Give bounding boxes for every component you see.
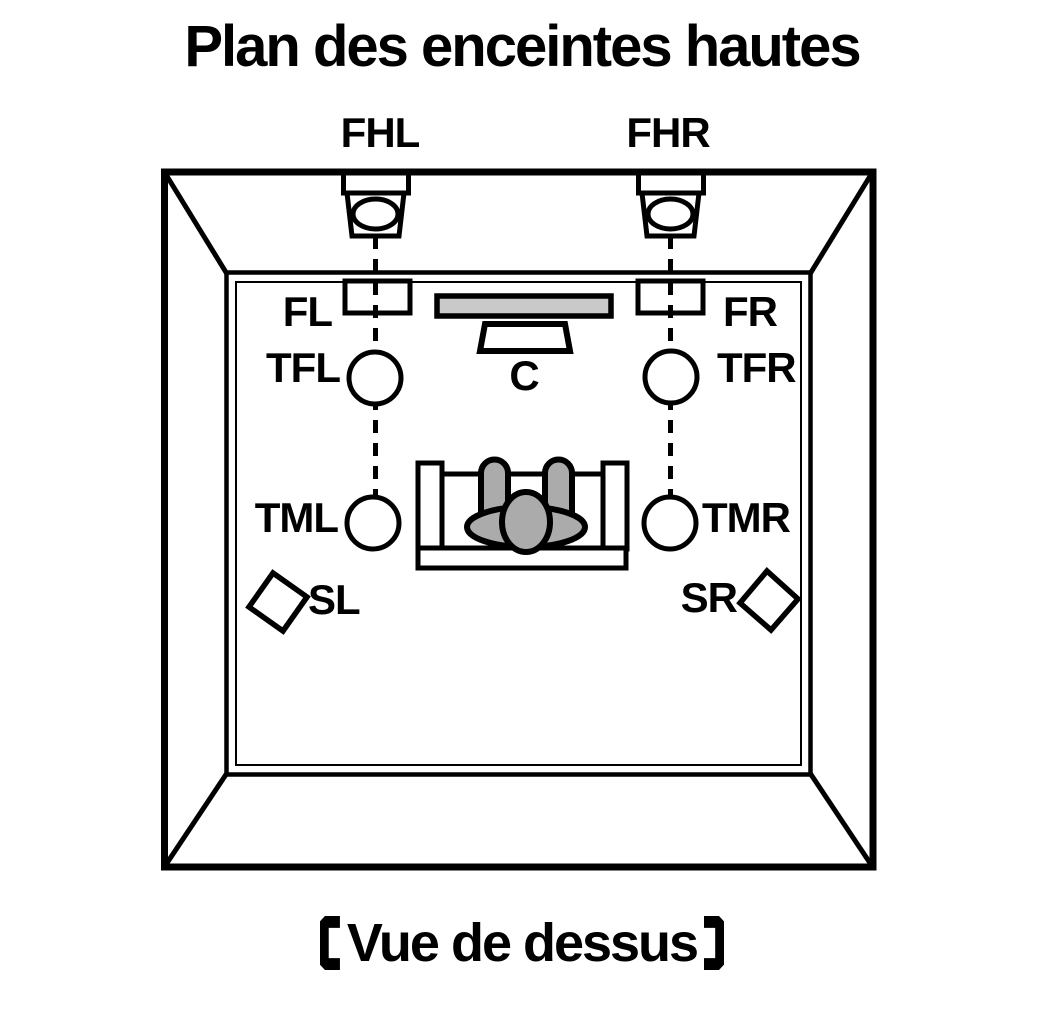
label-tmr: TMR — [702, 497, 790, 539]
label-c: C — [509, 355, 538, 397]
fhl-mount — [344, 173, 409, 193]
fhr-driver — [648, 199, 693, 229]
view-caption-text: Vue de dessus — [347, 916, 697, 970]
speaker-sr-icon — [740, 571, 798, 630]
label-tfr: TFR — [717, 347, 796, 389]
speaker-sl-icon — [249, 573, 307, 631]
room-corner-bottom-left — [165, 773, 227, 866]
sofa-armrest-left — [418, 463, 442, 549]
speaker-tfl-icon — [349, 352, 401, 404]
label-fr: FR — [723, 291, 777, 333]
speaker-fhl-icon — [344, 173, 409, 236]
tv-screen — [437, 296, 611, 316]
fhl-driver — [353, 199, 398, 229]
label-sl: SL — [308, 579, 360, 621]
room-corner-bottom-right — [810, 773, 872, 866]
listener-head — [502, 492, 550, 552]
room-corner-top-left — [165, 173, 227, 274]
label-fhr: FHR — [626, 112, 709, 154]
fhr-mount — [639, 173, 704, 193]
speaker-layout-figure: Plan des enceintes hautes — [0, 0, 1044, 1010]
label-tml: TML — [255, 497, 338, 539]
label-fhl: FHL — [341, 112, 420, 154]
label-fl: FL — [283, 291, 332, 333]
speaker-fhr-icon — [639, 173, 704, 236]
tv-icon — [437, 296, 611, 351]
label-sr: SR — [681, 577, 737, 619]
view-caption: Vue de dessus — [0, 916, 1044, 970]
top-view-room-diagram — [0, 0, 1044, 1010]
right-lenticular-bracket-icon — [704, 916, 724, 970]
label-tfl: TFL — [266, 347, 340, 389]
tv-stand — [480, 324, 570, 351]
left-lenticular-bracket-icon — [320, 916, 340, 970]
speaker-tmr-icon — [644, 497, 696, 549]
sofa-armrest-right — [603, 463, 627, 549]
speaker-tml-icon — [347, 497, 399, 549]
speaker-tfr-icon — [645, 351, 697, 403]
room-corner-top-right — [810, 173, 872, 274]
